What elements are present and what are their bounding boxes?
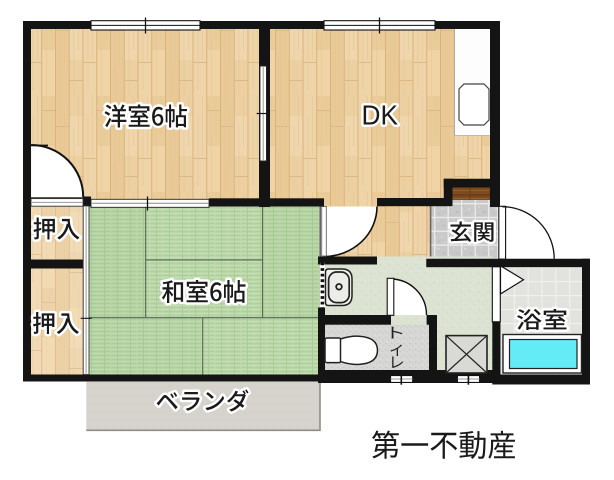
svg-text:DK: DK	[362, 100, 399, 131]
